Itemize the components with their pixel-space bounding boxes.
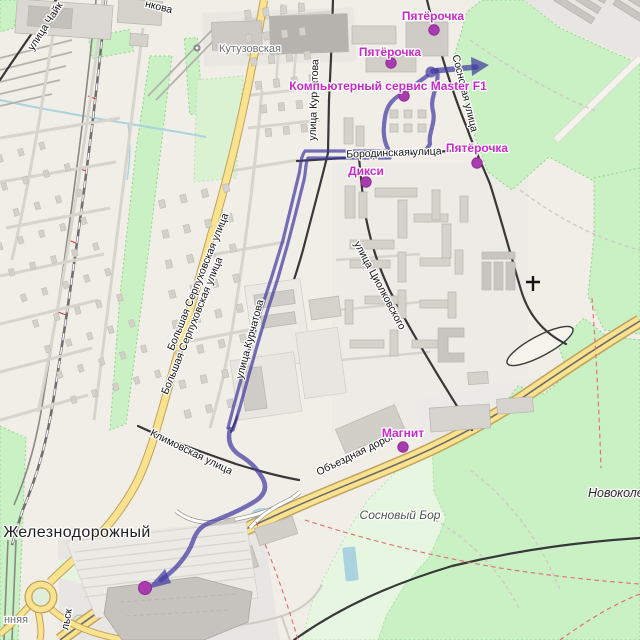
railway-station-icon bbox=[193, 44, 200, 51]
poi-label-pyaterochka-east: Пятёрочка bbox=[446, 141, 509, 155]
poi-label-magnit: Магнит bbox=[382, 426, 424, 440]
map-canvas[interactable]: Бородинская улица Сосновая улица улица К… bbox=[0, 0, 640, 640]
poi-marker-pyaterochka-top[interactable] bbox=[429, 25, 439, 35]
poi-marker-pyaterochka-east[interactable] bbox=[472, 158, 482, 168]
place-label-novokoledino: Новоколеди bbox=[588, 486, 640, 500]
poi-marker-magnit[interactable] bbox=[398, 442, 408, 452]
poi-label-master-f1: Компьютерный сервис Master F1 bbox=[289, 79, 487, 93]
map-viewport[interactable]: Бородинская улица Сосновая улица улица К… bbox=[0, 0, 640, 640]
street-label-partial-bottom-left: нняя bbox=[4, 614, 28, 626]
poi-marker-diksi[interactable] bbox=[361, 177, 371, 187]
place-label-zheleznodorozhny: Железнодорожный bbox=[3, 524, 150, 541]
place-label-sosnovy-bor: Сосновый Бор bbox=[360, 508, 441, 522]
poi-label-pyaterochka-mid: Пятёрочка bbox=[359, 45, 422, 59]
poi-marker-pyaterochka-mid[interactable] bbox=[386, 58, 396, 68]
station-label-kutuzovskaya: Кутузовская bbox=[219, 43, 281, 55]
poi-label-pyaterochka-top: Пятёрочка bbox=[402, 9, 465, 23]
poi-label-diksi: Дикси bbox=[348, 164, 384, 178]
poi-marker-mall[interactable] bbox=[139, 582, 152, 595]
